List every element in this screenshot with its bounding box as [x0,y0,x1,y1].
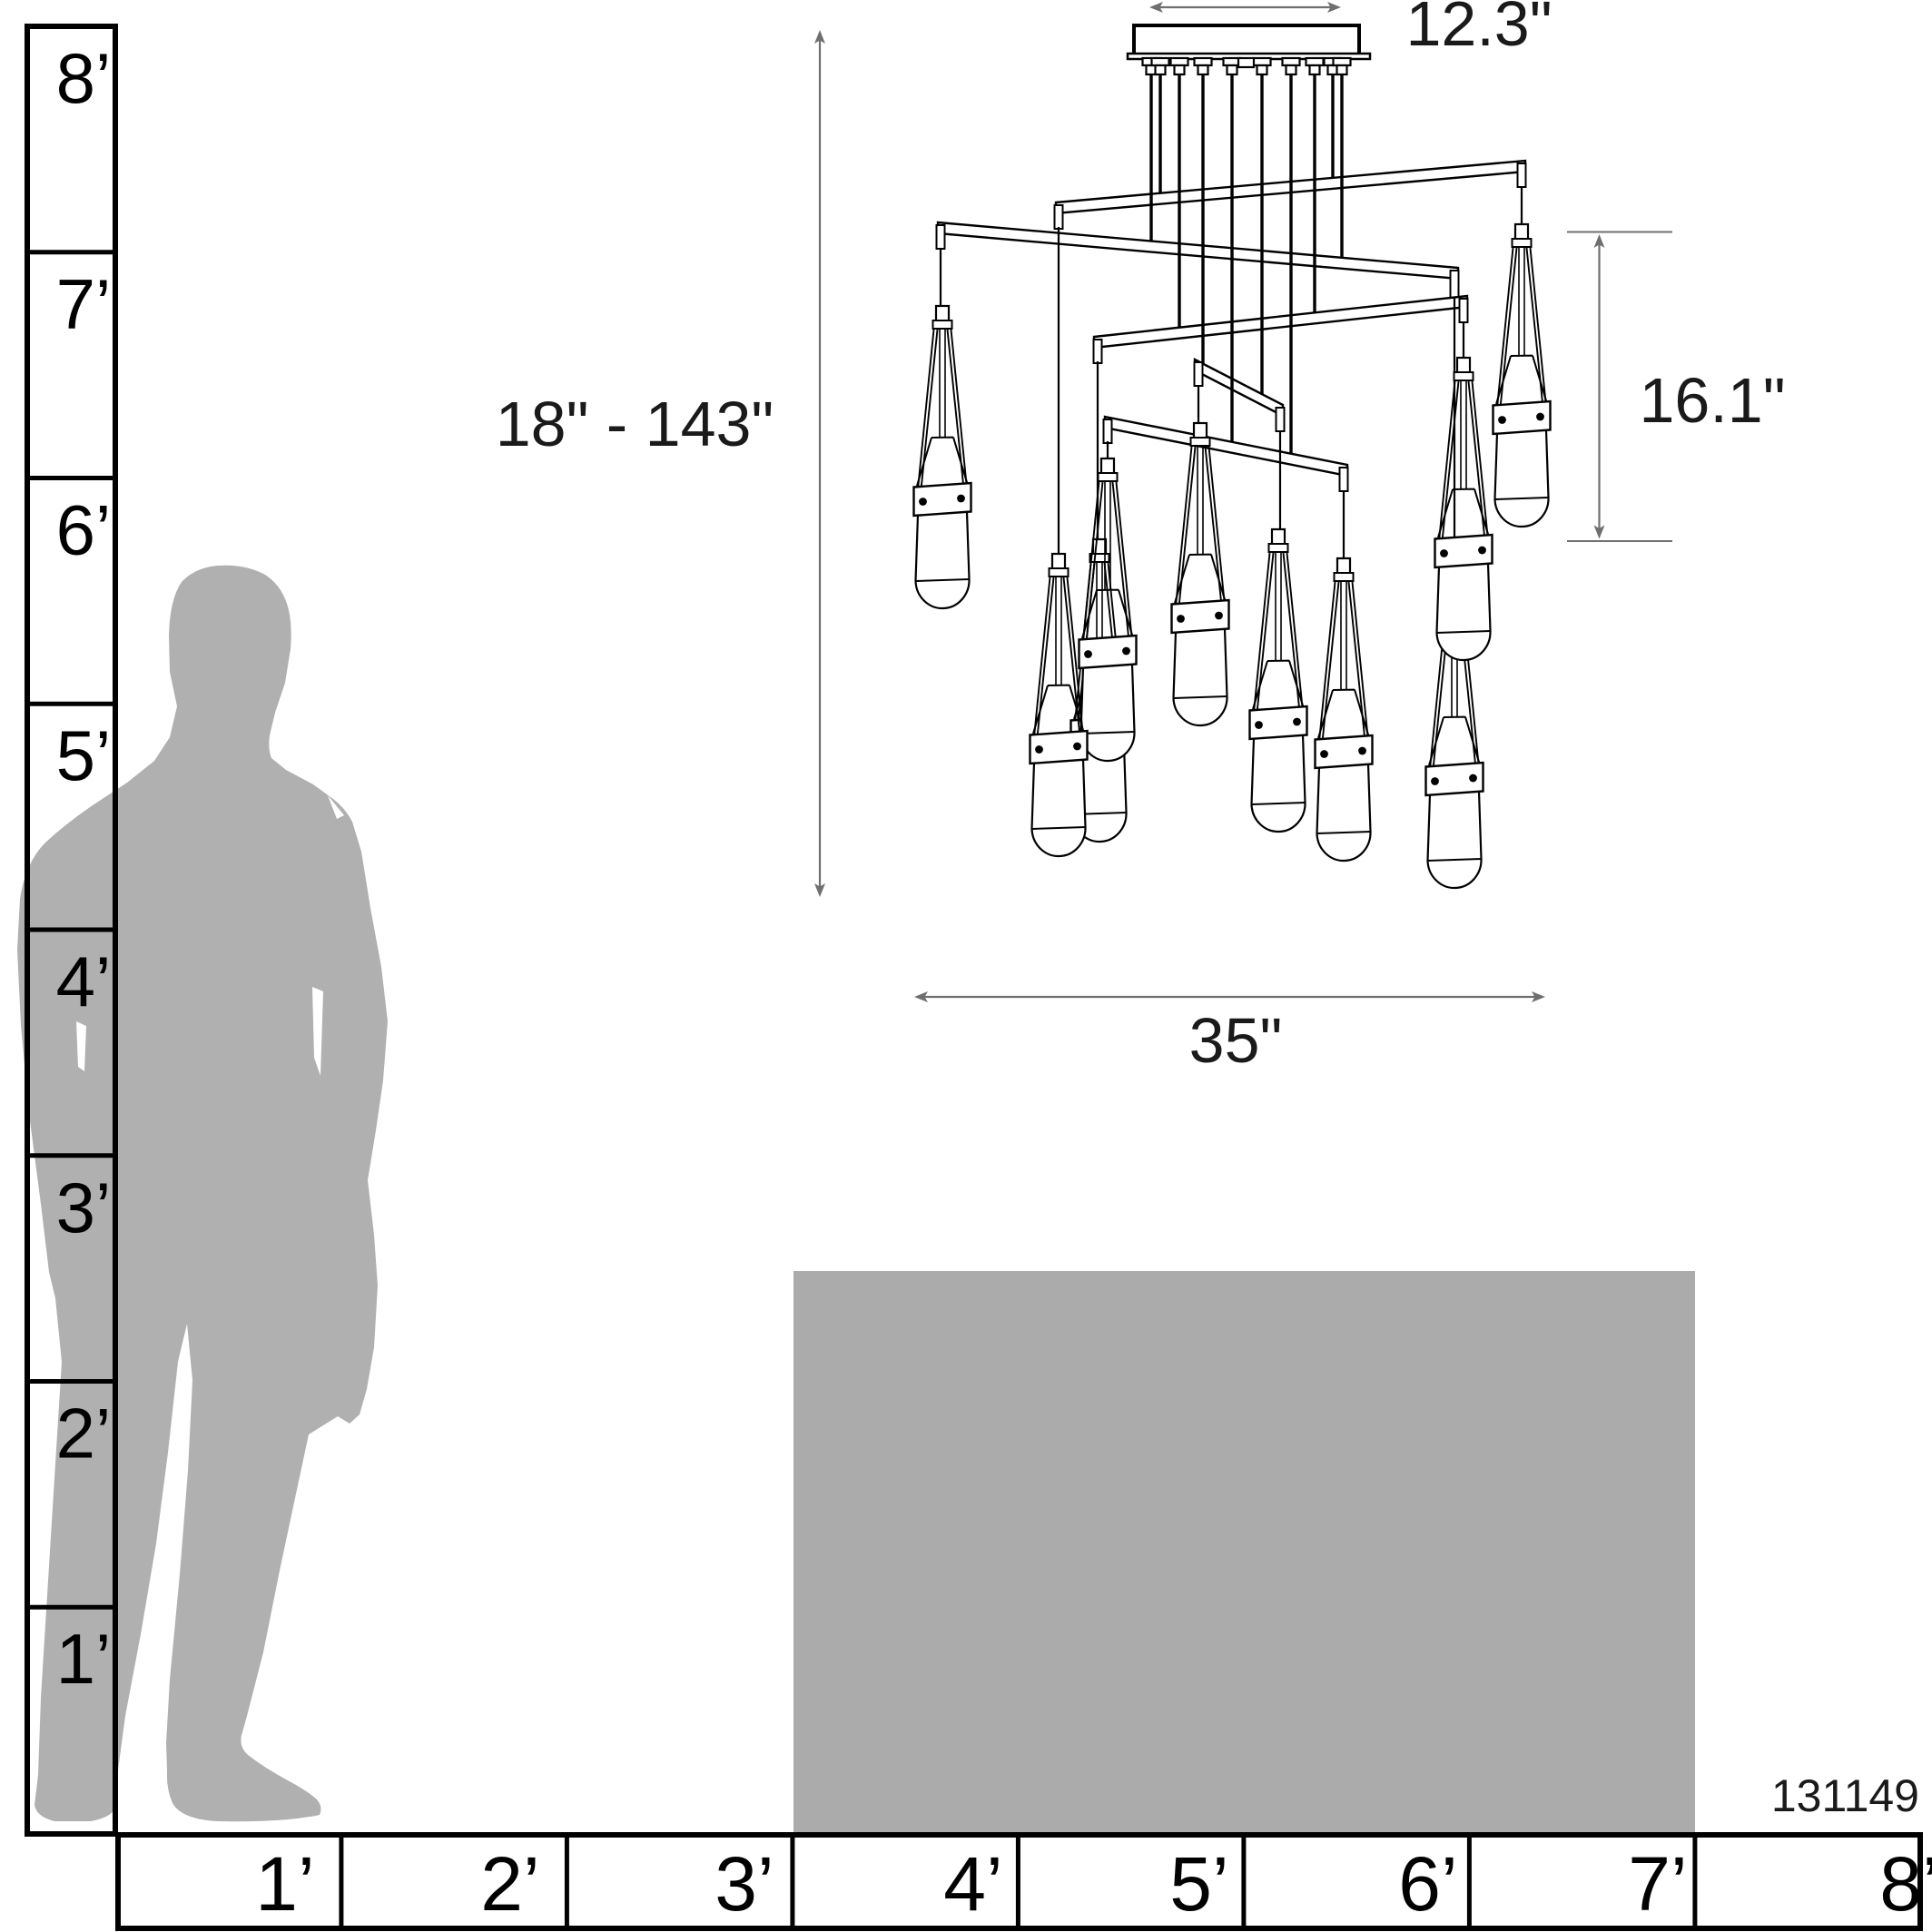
svg-text:2’: 2’ [56,1394,112,1474]
svg-text:16.1": 16.1" [1639,365,1785,436]
svg-text:7’: 7’ [1628,1841,1687,1927]
svg-text:3’: 3’ [56,1168,112,1247]
svg-text:5’: 5’ [1169,1841,1228,1927]
svg-text:2’: 2’ [480,1841,539,1927]
svg-text:35": 35" [1189,1005,1283,1076]
svg-text:1’: 1’ [56,1619,112,1699]
svg-text:131149: 131149 [1771,1770,1919,1821]
svg-text:4’: 4’ [56,941,112,1021]
svg-text:12.3": 12.3" [1405,0,1552,59]
svg-text:6’: 6’ [56,490,112,570]
svg-text:6’: 6’ [1398,1841,1457,1927]
svg-text:8’: 8’ [56,38,112,118]
svg-text:1’: 1’ [255,1841,314,1927]
svg-text:4’: 4’ [943,1841,1002,1927]
svg-text:18" - 143": 18" - 143" [496,389,774,459]
svg-text:8’: 8’ [1879,1841,1932,1927]
svg-text:5’: 5’ [56,715,112,795]
svg-text:7’: 7’ [56,264,112,344]
svg-text:3’: 3’ [715,1841,774,1927]
